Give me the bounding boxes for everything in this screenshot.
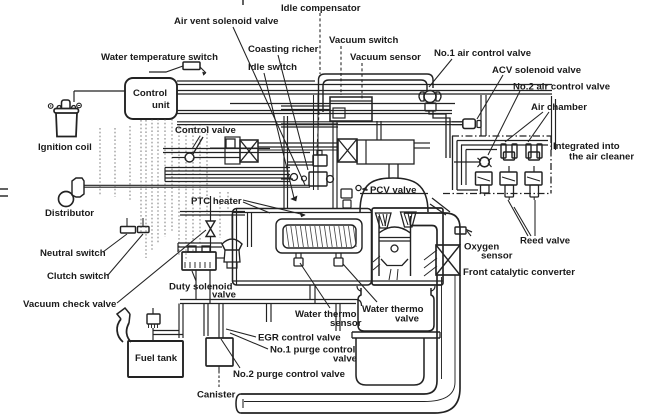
svg-text:valve: valve — [333, 354, 357, 365]
svg-text:ACV solenoid valve: ACV solenoid valve — [492, 65, 581, 76]
svg-text:Fuel tank: Fuel tank — [135, 353, 178, 364]
svg-text:the air cleaner: the air cleaner — [569, 152, 634, 163]
svg-text:sensor: sensor — [481, 251, 513, 262]
svg-text:Reed valve: Reed valve — [520, 236, 570, 247]
svg-text:Air chamber: Air chamber — [531, 102, 587, 113]
svg-text:Distributor: Distributor — [45, 208, 94, 219]
svg-text:PTC heater: PTC heater — [191, 196, 242, 207]
svg-text:Clutch switch: Clutch switch — [47, 271, 110, 282]
svg-text:Integrated into: Integrated into — [553, 141, 620, 152]
svg-text:Neutral switch: Neutral switch — [40, 248, 106, 259]
svg-text:Coasting richer: Coasting richer — [248, 44, 319, 55]
svg-text:PCV valve: PCV valve — [370, 185, 416, 196]
svg-text:Control: Control — [133, 88, 167, 99]
svg-text:Water temperature switch: Water temperature switch — [101, 52, 218, 63]
svg-text:Vacuum switch: Vacuum switch — [329, 35, 398, 46]
svg-text:Canister: Canister — [197, 390, 236, 401]
svg-text:Vacuum sensor: Vacuum sensor — [350, 52, 421, 63]
svg-text:unit: unit — [152, 100, 170, 111]
svg-text:sensor: sensor — [330, 318, 362, 329]
svg-text:Vacuum check valve: Vacuum check valve — [23, 299, 116, 310]
svg-text:Front catalytic converter: Front catalytic converter — [463, 267, 575, 278]
svg-text:Idle compensator: Idle compensator — [281, 3, 361, 14]
svg-text:valve: valve — [395, 314, 419, 325]
svg-text:EGR control valve: EGR control valve — [258, 333, 341, 344]
svg-text:Control valve: Control valve — [175, 125, 236, 136]
svg-text:Air vent solenoid valve: Air vent solenoid valve — [174, 16, 279, 27]
svg-text:No.2 purge control valve: No.2 purge control valve — [233, 369, 345, 380]
svg-text:Ignition coil: Ignition coil — [38, 142, 92, 153]
svg-text:Idle switch: Idle switch — [248, 62, 297, 73]
svg-text:No.1 air control valve: No.1 air control valve — [434, 48, 531, 59]
